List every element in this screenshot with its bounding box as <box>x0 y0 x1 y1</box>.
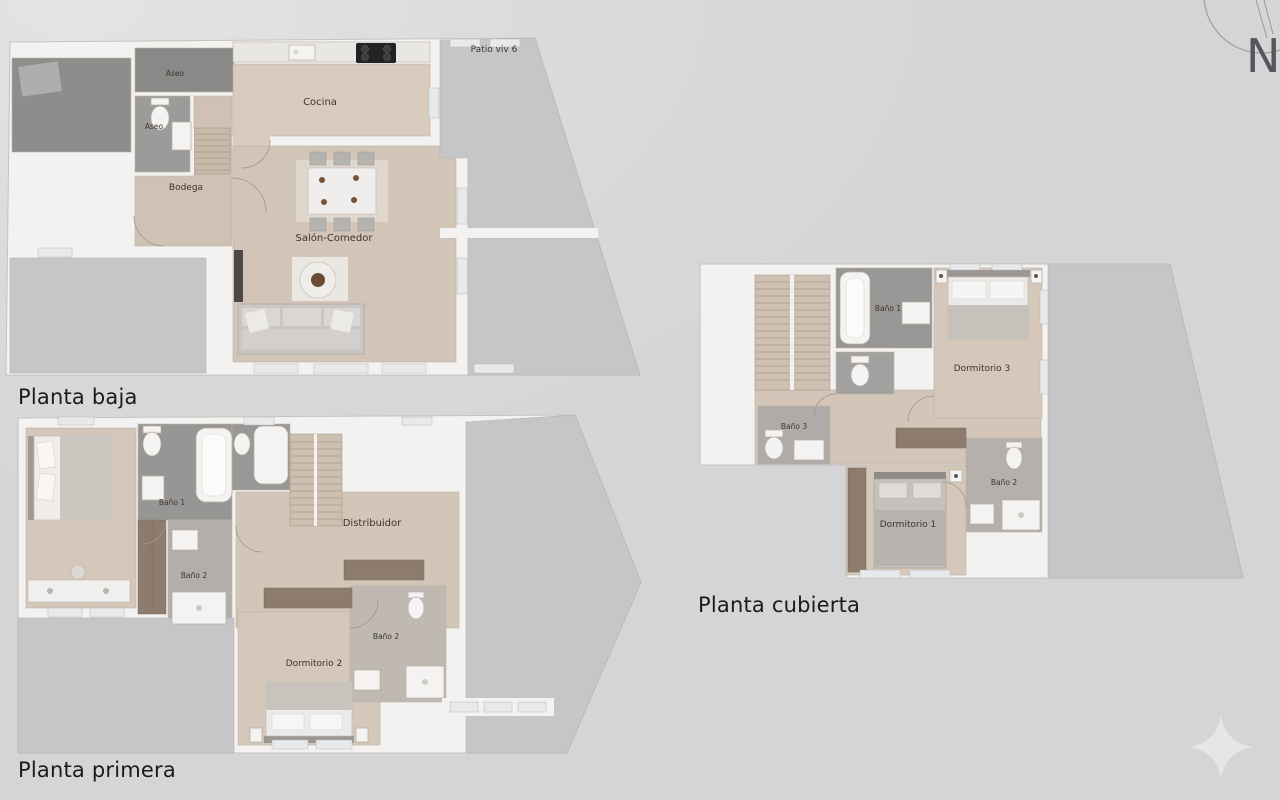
floorplan-canvas: Aseo Aseo Bodega Cocina Salón-Comedor Pa… <box>0 0 1280 800</box>
baja-patio-divider-wall <box>440 228 598 238</box>
sink-icon <box>794 440 824 460</box>
sink-icon <box>142 476 164 500</box>
bed-headboard <box>946 270 1030 277</box>
nightstand <box>250 728 262 742</box>
compass-north-indicator: N <box>1160 0 1280 120</box>
room-label-bano1: Baño 1 <box>159 498 185 507</box>
sink-icon <box>970 504 994 524</box>
stool <box>71 565 85 579</box>
wardrobe <box>896 428 966 448</box>
toilet-icon <box>143 432 161 456</box>
baja-stairs <box>191 128 230 174</box>
bed-headboard <box>28 436 34 520</box>
baja-patio-right <box>440 38 640 375</box>
toilet-icon <box>765 437 783 459</box>
baja-patio-bottomleft <box>10 258 206 373</box>
room-label-bano2: Baño 2 <box>991 478 1017 487</box>
nightstand <box>356 728 368 742</box>
baja-dining-set <box>296 152 388 231</box>
toilet-icon <box>1006 447 1022 469</box>
plan-planta-baja: Aseo Aseo Bodega Cocina Salón-Comedor Pa… <box>4 28 644 380</box>
sink-icon <box>902 302 930 324</box>
room-label-dorm1: Dormitorio 1 <box>880 520 937 530</box>
tv-unit <box>234 250 243 302</box>
kitchen-sink-icon <box>289 45 315 60</box>
room-label-bano1: Baño 1 <box>875 304 901 313</box>
title-planta-cubierta: Planta cubierta <box>698 593 860 617</box>
title-planta-primera: Planta primera <box>18 758 176 782</box>
sparkle-icon <box>1186 712 1256 782</box>
sink-icon <box>172 530 198 550</box>
baja-kitchen-counter <box>233 42 430 62</box>
title-planta-baja: Planta baja <box>18 385 138 409</box>
toilet-icon <box>408 597 424 619</box>
primera-patio-bottomleft <box>18 618 234 753</box>
room-label-aseo1: Aseo <box>166 69 185 78</box>
room-label-bodega: Bodega <box>169 183 203 193</box>
room-label-dorm2: Dormitorio 2 <box>286 659 343 669</box>
baja-aseo1-floor <box>135 48 234 92</box>
toilet-tank <box>151 98 169 105</box>
room-label-bano3: Baño 3 <box>781 422 807 431</box>
toilet-icon <box>234 433 250 455</box>
compass-n-label: N <box>1246 29 1280 83</box>
wardrobe <box>848 468 866 572</box>
primera-dorm2-furniture <box>250 682 368 743</box>
wardrobe <box>264 588 352 608</box>
cooktop-icon <box>356 43 396 63</box>
plan-planta-primera: Baño 1 Baño 2 Distribuidor Dormitorio 2 … <box>14 410 646 762</box>
cubierta-dorm3-furniture <box>936 270 1042 339</box>
room-label-bano2l: Baño 2 <box>181 571 207 580</box>
room-label-salon: Salón-Comedor <box>296 232 374 244</box>
bed-headboard <box>874 472 946 479</box>
primera-stairs <box>290 434 342 526</box>
dining-table <box>308 168 376 214</box>
bathtub-icon <box>254 426 288 484</box>
cubierta-stairs <box>755 275 830 390</box>
cubierta-patio-right <box>1048 264 1243 578</box>
room-label-distribuidor: Distribuidor <box>343 518 402 529</box>
room-label-patio: Patio viv 6 <box>471 45 518 55</box>
vanity-desk <box>28 580 130 602</box>
toilet-icon <box>851 364 869 386</box>
wardrobe <box>344 560 424 580</box>
baja-patio-ramp <box>18 61 62 96</box>
room-label-aseo2: Aseo <box>145 122 164 131</box>
plan-planta-cubierta: Baño 1 Dormitorio 3 Baño 3 Baño 2 Dormit… <box>696 256 1248 588</box>
room-label-dorm3: Dormitorio 3 <box>954 364 1011 374</box>
room-label-cocina: Cocina <box>303 97 337 108</box>
room-label-bano2r: Baño 2 <box>373 632 399 641</box>
sink-icon <box>354 670 380 690</box>
sink-icon <box>172 122 191 150</box>
